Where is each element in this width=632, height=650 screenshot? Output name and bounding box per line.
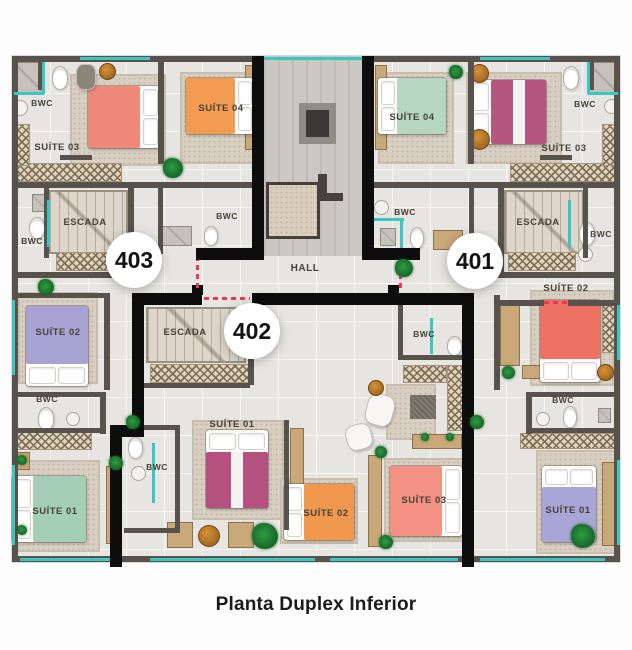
room-label-bwc: BWC bbox=[565, 98, 605, 110]
wall bbox=[568, 300, 620, 306]
toilet bbox=[447, 336, 462, 356]
room-label-suite02: SUÍTE 02 bbox=[23, 326, 93, 338]
room-label-escada: ESCADA bbox=[503, 216, 573, 228]
armchair bbox=[76, 64, 96, 90]
closet bbox=[447, 365, 463, 431]
plant bbox=[395, 259, 413, 277]
unit-wall bbox=[362, 248, 420, 260]
wall bbox=[12, 293, 110, 298]
bed-pillow bbox=[58, 367, 85, 384]
toilet bbox=[563, 406, 577, 428]
plant bbox=[109, 456, 123, 470]
room-label-bwc: BWC bbox=[543, 394, 583, 406]
window bbox=[150, 558, 315, 561]
window bbox=[480, 57, 550, 60]
wall bbox=[583, 188, 588, 258]
plant bbox=[502, 366, 515, 379]
unit-402-badge: 402 bbox=[224, 303, 280, 359]
room-label-bwc: BWC bbox=[137, 461, 177, 473]
window bbox=[480, 558, 605, 561]
window bbox=[617, 305, 620, 360]
closet bbox=[510, 163, 616, 182]
closet bbox=[508, 252, 576, 271]
plant bbox=[163, 158, 183, 178]
wall bbox=[12, 428, 104, 433]
bed-blanket bbox=[397, 78, 446, 134]
unit-403-badge: 403 bbox=[106, 232, 162, 288]
room-label-bwc: BWC bbox=[385, 206, 425, 218]
wall bbox=[498, 272, 620, 278]
window bbox=[264, 57, 362, 60]
room-label-suite02: SUÍTE 02 bbox=[291, 507, 361, 519]
window bbox=[80, 57, 150, 60]
room-label-bwc: BWC bbox=[404, 328, 444, 340]
plant bbox=[375, 446, 387, 458]
bed-pillow bbox=[143, 118, 158, 145]
door-marker-402 bbox=[204, 297, 250, 300]
unit-wall bbox=[388, 285, 399, 295]
closet bbox=[403, 365, 447, 383]
wall bbox=[398, 305, 403, 360]
window bbox=[330, 558, 458, 561]
toilet bbox=[52, 66, 68, 90]
unit-wall bbox=[252, 293, 464, 305]
palm-plant bbox=[571, 524, 595, 548]
plant bbox=[449, 65, 463, 79]
pouf bbox=[228, 522, 254, 548]
wall bbox=[104, 295, 110, 390]
bed-pillow bbox=[381, 81, 395, 105]
wall bbox=[124, 528, 180, 533]
window bbox=[12, 465, 15, 545]
toilet bbox=[563, 66, 579, 90]
round-pouf bbox=[368, 380, 384, 396]
elevator-car bbox=[266, 182, 320, 239]
palm-plant bbox=[252, 523, 278, 549]
round-pouf bbox=[597, 364, 614, 381]
room-label-bwc: BWC bbox=[27, 393, 67, 405]
plant bbox=[126, 415, 140, 429]
wall bbox=[144, 383, 250, 388]
closet bbox=[14, 432, 92, 450]
room-label-suite04: SUÍTE 04 bbox=[377, 111, 447, 123]
plant bbox=[421, 433, 429, 441]
toilet bbox=[128, 437, 143, 459]
shower bbox=[598, 408, 611, 423]
sink bbox=[66, 412, 80, 426]
room-label-suite01: SUÍTE 01 bbox=[533, 504, 603, 516]
bed-pillow bbox=[238, 433, 265, 450]
toilet bbox=[410, 227, 424, 249]
coffee-table bbox=[410, 395, 436, 419]
wall bbox=[284, 420, 289, 530]
round-table bbox=[198, 525, 220, 547]
wall bbox=[468, 56, 474, 164]
bed-runner bbox=[231, 452, 243, 508]
wall bbox=[158, 182, 163, 254]
plant bbox=[38, 279, 54, 295]
bed-suite04-401 bbox=[378, 78, 446, 134]
room-label-suite03: SUÍTE 03 bbox=[529, 142, 599, 154]
plant bbox=[470, 415, 484, 429]
plant bbox=[379, 535, 393, 549]
closet-suite02-401 bbox=[500, 302, 520, 366]
room-label-suite04: SUÍTE 04 bbox=[186, 102, 256, 114]
room-label-escada: ESCADA bbox=[50, 216, 120, 228]
glass-partition bbox=[588, 92, 618, 95]
bed-blanket bbox=[540, 300, 600, 359]
closet bbox=[56, 252, 112, 271]
bed-pillow bbox=[473, 83, 489, 111]
wall bbox=[60, 155, 92, 160]
room-label-escada: ESCADA bbox=[150, 326, 220, 338]
room-label-bwc: BWC bbox=[207, 210, 247, 222]
sink bbox=[536, 412, 550, 426]
closet bbox=[150, 364, 250, 383]
wall bbox=[175, 425, 180, 530]
bed-pillow bbox=[29, 367, 56, 384]
pouf bbox=[167, 522, 193, 548]
room-label-suite02: SUÍTE 02 bbox=[531, 282, 601, 294]
bed-blanket bbox=[88, 86, 140, 148]
plant bbox=[17, 455, 27, 465]
glass-partition bbox=[370, 218, 404, 221]
wall bbox=[494, 295, 500, 390]
wall bbox=[528, 428, 620, 433]
unit-wall bbox=[132, 293, 144, 425]
shower bbox=[380, 228, 396, 246]
unit-wall bbox=[252, 56, 264, 256]
window bbox=[20, 558, 110, 561]
wardrobe-suite03-402 bbox=[368, 455, 382, 547]
room-label-bwc: BWC bbox=[12, 235, 52, 247]
unit-401-badge: 401 bbox=[447, 233, 503, 289]
room-label-suite01: SUÍTE 01 bbox=[197, 418, 267, 430]
room-label-bwc: BWC bbox=[581, 228, 621, 240]
wall bbox=[494, 300, 544, 306]
bed-suite03-403 bbox=[88, 86, 160, 148]
bed-runner bbox=[513, 80, 525, 144]
room-label-suite01: SUÍTE 01 bbox=[20, 505, 90, 517]
door-marker-suite02-401 bbox=[544, 301, 568, 304]
room-label-suite03: SUÍTE 03 bbox=[389, 494, 459, 506]
hall-label: HALL bbox=[280, 262, 330, 274]
closet bbox=[520, 433, 616, 449]
glass-partition bbox=[152, 443, 155, 503]
glass-partition bbox=[587, 62, 590, 94]
wall bbox=[158, 56, 164, 164]
bed-pillow bbox=[209, 433, 236, 450]
window bbox=[12, 300, 15, 375]
wall bbox=[540, 155, 572, 160]
shower bbox=[162, 226, 192, 246]
bed-pillow bbox=[570, 469, 593, 485]
sideboard bbox=[412, 434, 462, 449]
page-title: Planta Duplex Inferior bbox=[0, 594, 632, 616]
round-pouf bbox=[99, 63, 116, 80]
bed-suite02-401 bbox=[540, 300, 600, 382]
glass-partition bbox=[14, 92, 44, 95]
bed-suite02-403 bbox=[26, 306, 88, 386]
bed-pillow bbox=[445, 502, 460, 533]
unit-wall bbox=[196, 248, 264, 260]
unit-wall bbox=[462, 293, 474, 567]
bed-suite01-402 bbox=[206, 430, 268, 508]
wall bbox=[398, 355, 463, 360]
room-label-bwc: BWC bbox=[22, 97, 62, 109]
window bbox=[617, 460, 620, 545]
room-label-suite03: SUÍTE 03 bbox=[22, 141, 92, 153]
floor-plan-canvas: Planta Duplex Inferior 403401402BWCSUÍTE… bbox=[0, 0, 632, 650]
door-marker-403 bbox=[196, 260, 199, 288]
unit-wall bbox=[362, 56, 374, 256]
core-wall bbox=[318, 193, 343, 201]
glass-partition bbox=[42, 62, 45, 94]
plant bbox=[17, 525, 27, 535]
elevator-shaft-inner bbox=[306, 110, 329, 137]
bed-pillow bbox=[571, 362, 597, 380]
plant bbox=[446, 433, 454, 441]
bed-pillow bbox=[143, 89, 158, 116]
bed-pillow bbox=[543, 362, 569, 380]
toilet bbox=[204, 226, 218, 246]
bed-pillow bbox=[545, 469, 568, 485]
